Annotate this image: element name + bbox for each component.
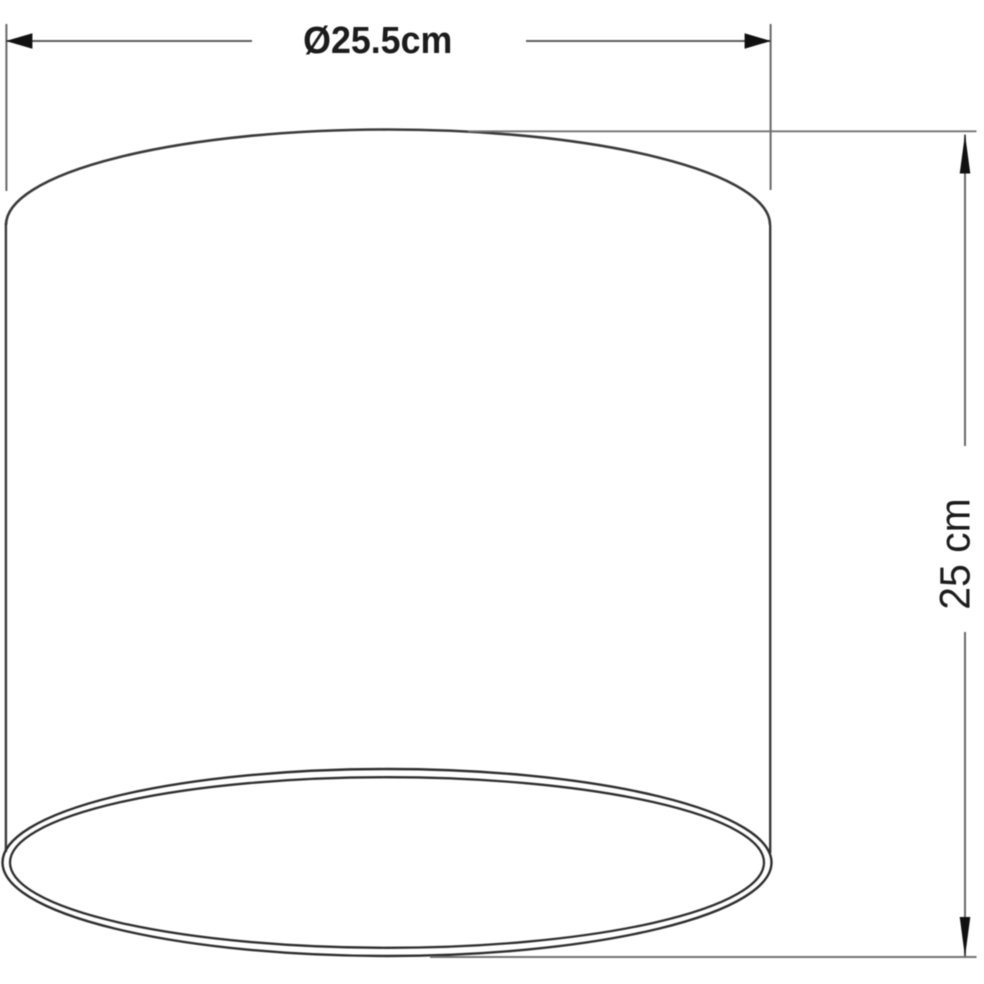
svg-text:Ø25.5cm: Ø25.5cm [303, 19, 452, 61]
svg-text:25 cm: 25 cm [931, 498, 979, 610]
